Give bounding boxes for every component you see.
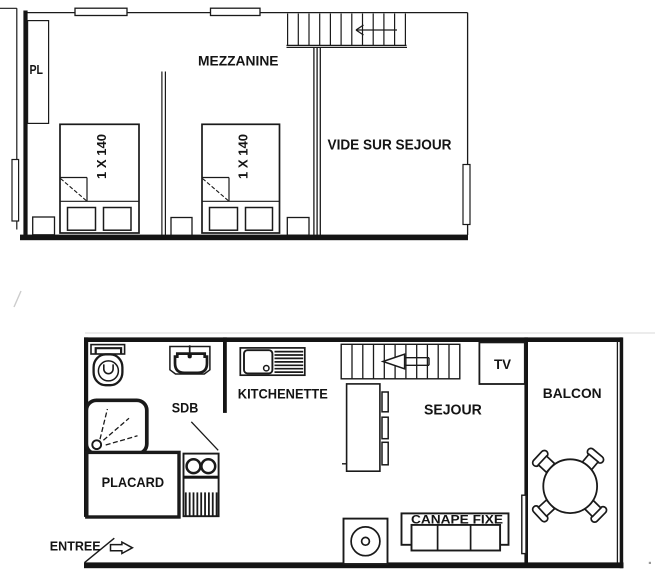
svg-text:KITCHENETTE: KITCHENETTE: [238, 385, 328, 401]
svg-text:SEJOUR: SEJOUR: [424, 403, 482, 419]
svg-text:PL: PL: [30, 63, 44, 77]
svg-text:CANAPE FIXE: CANAPE FIXE: [411, 513, 503, 527]
svg-text:MEZZANINE: MEZZANINE: [198, 53, 279, 69]
svg-text:TV: TV: [494, 356, 512, 372]
svg-text:1 X 140: 1 X 140: [94, 134, 109, 179]
svg-text:VIDE SUR SEJOUR: VIDE SUR SEJOUR: [328, 137, 452, 154]
svg-text:ENTREE: ENTREE: [50, 540, 101, 554]
svg-text:1 X 140: 1 X 140: [236, 134, 251, 179]
svg-text:SDB: SDB: [172, 400, 199, 416]
svg-text:BALCON: BALCON: [543, 385, 602, 401]
svg-text:PLACARD: PLACARD: [102, 474, 165, 490]
